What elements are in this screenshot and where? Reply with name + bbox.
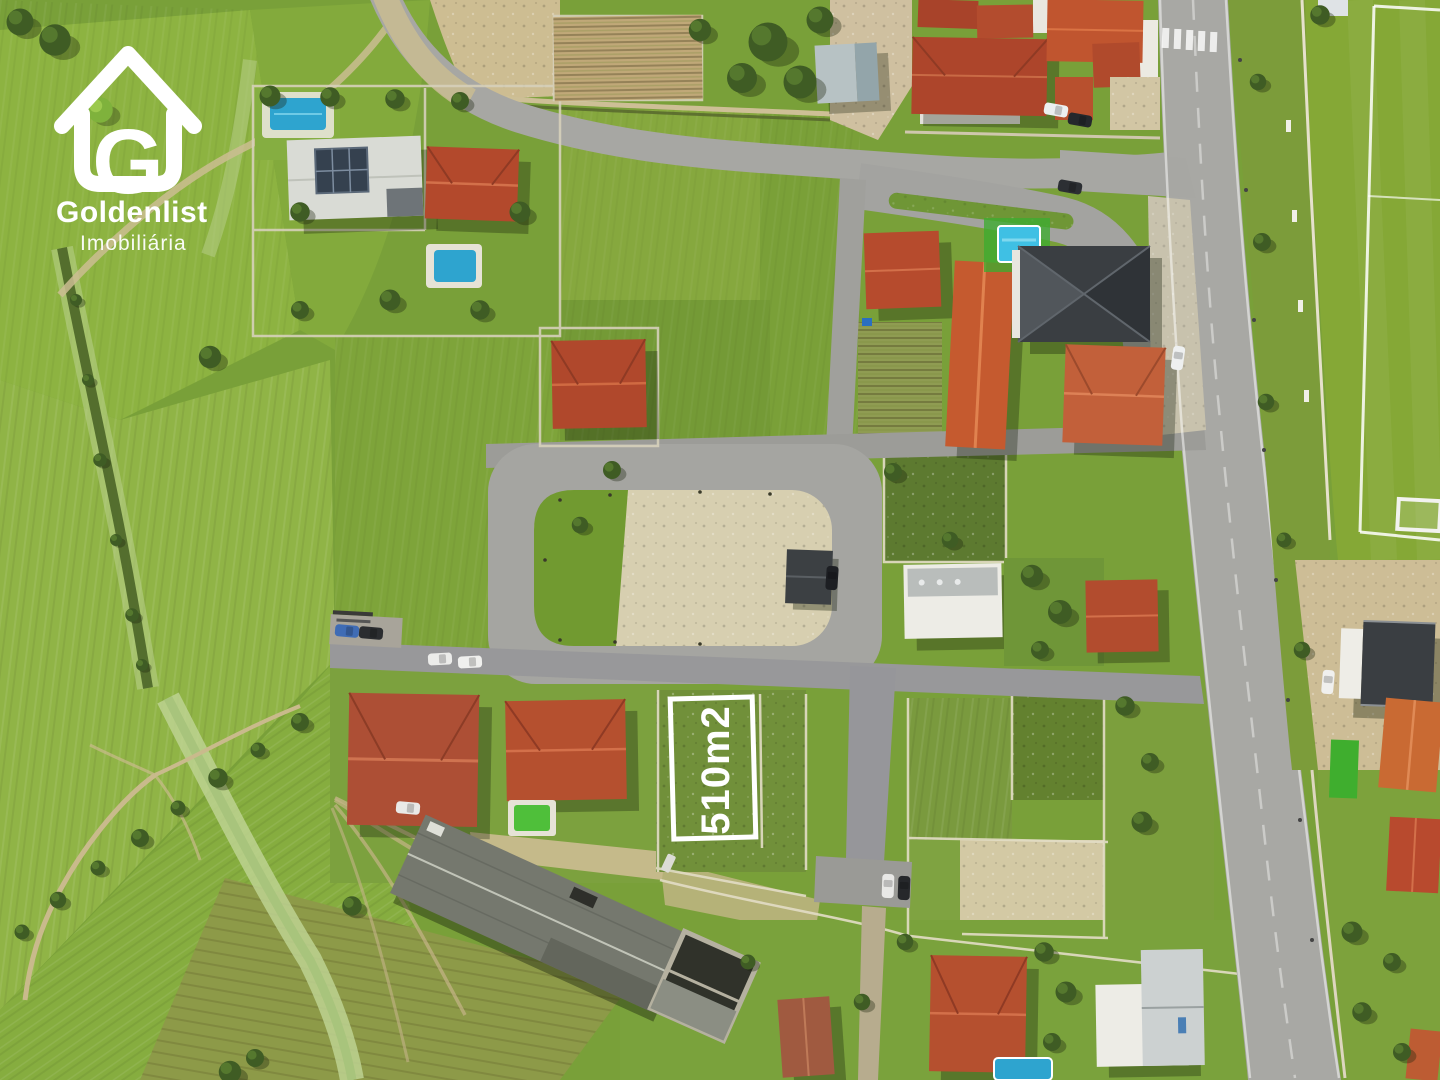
brand-tagline: Imobiliária [80,232,187,255]
garden-pool-2 [426,244,482,288]
east-red-house [1386,817,1440,894]
car [882,874,895,898]
bottom-pool [994,1058,1052,1080]
swimming-pool [994,1058,1052,1080]
rustic-house [777,996,846,1080]
car [428,652,453,665]
aerial-listing-photo: 510m2 G Goldenlist Imobiliária [0,0,1440,1080]
car [396,801,421,815]
terraced-garden [553,15,702,102]
south-red-house-2 [505,699,639,813]
car [335,624,360,638]
car [359,626,384,640]
field-red-house [551,339,659,441]
goal-frame [1397,499,1440,531]
median-red-house [864,230,954,321]
east-orange-house [1378,698,1440,793]
plaza-island-grass [534,490,628,646]
car [898,876,911,900]
car [458,655,483,668]
dark-roof-house [1012,246,1162,354]
car [825,566,839,591]
brand-name: Goldenlist [56,196,208,229]
east-red-cottage [1085,579,1169,663]
orange-hip-house [1062,344,1178,458]
south-red-house-1 [347,693,492,839]
swimming-pool [434,250,476,282]
village-cluster [905,0,1160,138]
green-water-pool [508,800,556,836]
car [1321,670,1335,695]
swimming-pool [514,805,550,831]
white-modern-house [903,563,1014,651]
plot-area-label: 510m2 [694,705,738,835]
aerial-scene: 510m2 G Goldenlist Imobiliária [0,0,1440,1080]
